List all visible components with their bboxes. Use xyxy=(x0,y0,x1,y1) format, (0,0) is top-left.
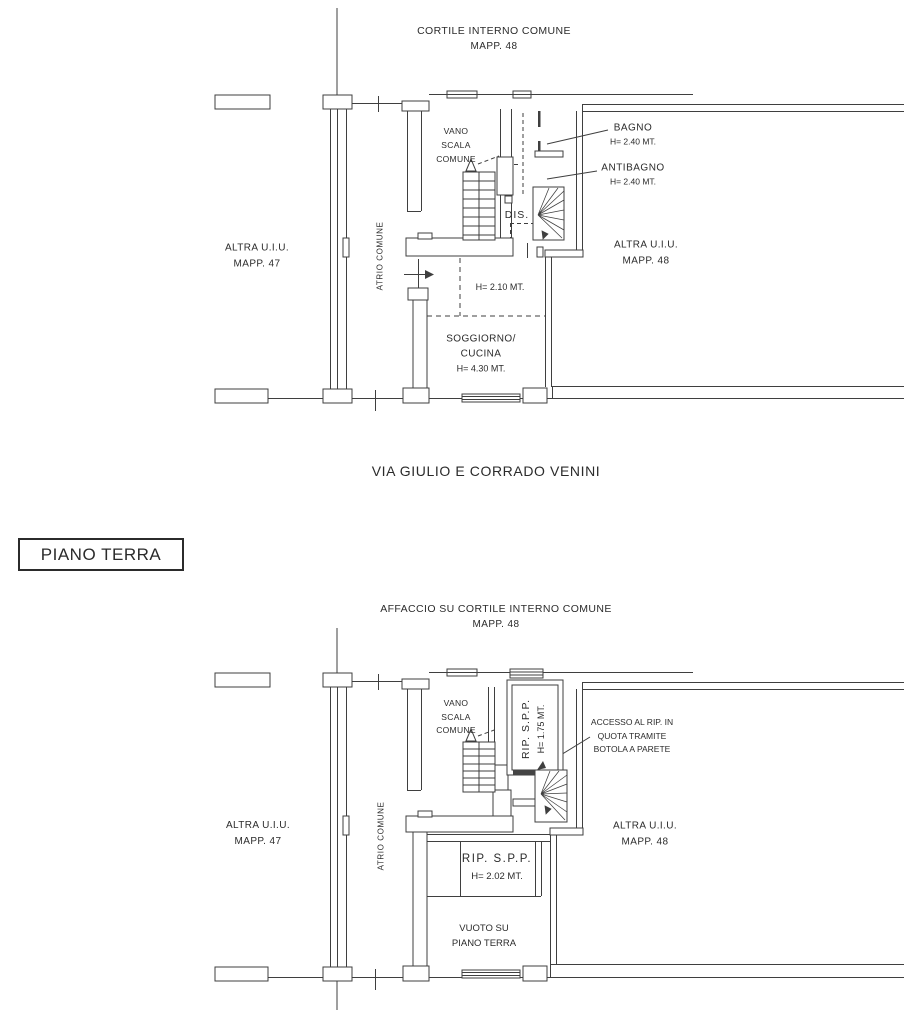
room-label-vano-scala-top: VANO SCALA COMUNE xyxy=(436,124,476,166)
area-label-altra-uiu-47-bottom: ALTRA U.I.U. MAPP. 47 xyxy=(226,818,290,850)
floor-title-box: PIANO TERRA xyxy=(18,538,184,571)
plan-bottom-walls xyxy=(268,628,904,1010)
room-label-vuoto: VUOTO SU PIANO TERRA xyxy=(452,921,516,951)
floor-plan-page: CORTILE INTERNO COMUNE MAPP. 48 VANO SCA… xyxy=(0,0,904,1017)
area-label-altra-uiu-47-top: ALTRA U.I.U. MAPP. 47 xyxy=(225,241,289,272)
room-label-rip-spp-175: RIP. S.P.P. H= 1.75 MT. xyxy=(519,699,549,759)
corridor-label-atrio-bottom: ATRIO COMUNE xyxy=(377,802,386,871)
floor-title: PIANO TERRA xyxy=(41,545,161,565)
height-label-210: H= 2.10 MT. xyxy=(476,282,525,292)
room-label-soggiorno: SOGGIORNO/ CUCINA H= 4.30 MT. xyxy=(446,332,516,377)
room-label-vano-scala-bottom: VANO SCALA COMUNE xyxy=(436,697,476,738)
entrance-arrowhead xyxy=(425,270,434,279)
courtyard-label-bottom: AFFACCIO SU CORTILE INTERNO COMUNE MAPP.… xyxy=(380,601,612,633)
note-label-accesso: ACCESSO AL RIP. IN QUOTA TRAMITE BOTOLA … xyxy=(591,716,673,757)
corridor-label-atrio-top: ATRIO COMUNE xyxy=(376,222,385,291)
courtyard-mapp: MAPP. 48 xyxy=(417,39,571,55)
botola-hatch xyxy=(513,770,535,775)
area-label-altra-uiu-48-bottom: ALTRA U.I.U. MAPP. 48 xyxy=(613,819,677,850)
plan-top-walls xyxy=(268,8,904,411)
staircase-top-plan xyxy=(463,159,495,240)
courtyard-label-top: CORTILE INTERNO COMUNE MAPP. 48 xyxy=(417,23,571,55)
room-label-antibagno: ANTIBAGNO H= 2.40 MT. xyxy=(601,162,664,189)
area-label-altra-uiu-48-top: ALTRA U.I.U. MAPP. 48 xyxy=(614,238,678,269)
room-label-rip-spp-202: RIP. S.P.P. H= 2.02 MT. xyxy=(462,851,532,885)
street-label: VIA GIULIO E CORRADO VENINI xyxy=(372,463,601,479)
staircase-bottom-plan xyxy=(463,729,495,792)
courtyard-title: CORTILE INTERNO COMUNE xyxy=(417,23,571,39)
room-label-dis: DIS. xyxy=(505,209,529,221)
room-label-bagno: BAGNO H= 2.40 MT. xyxy=(610,122,656,149)
